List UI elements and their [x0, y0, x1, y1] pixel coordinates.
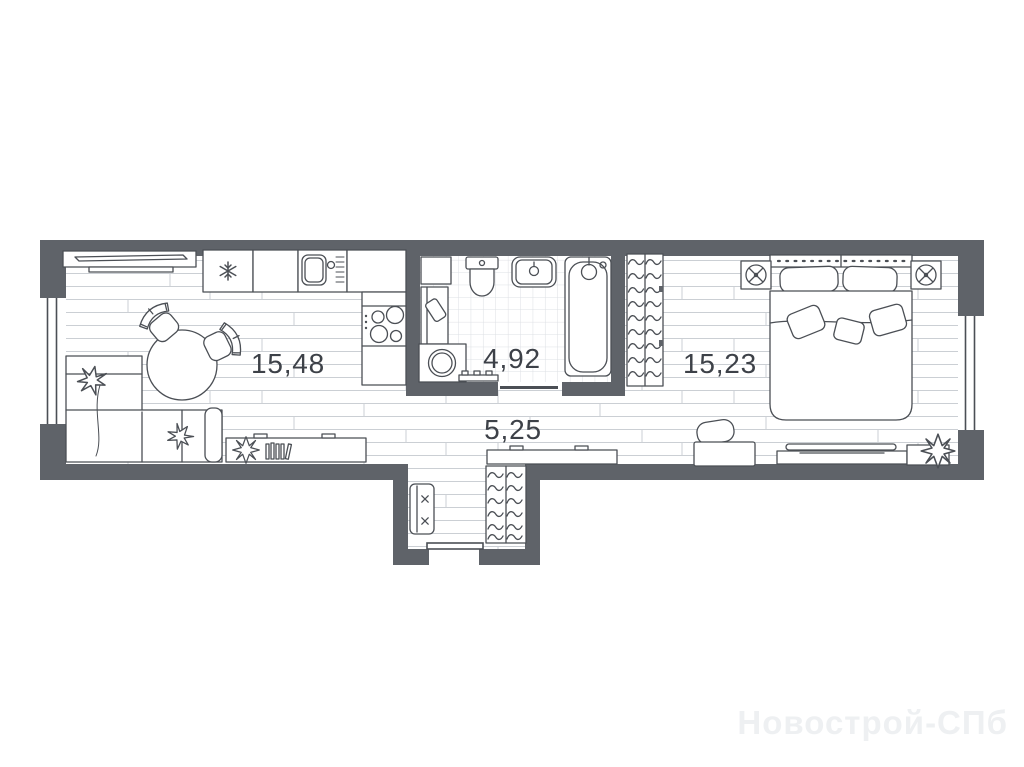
- wall-right-top: [958, 240, 984, 316]
- wall-bottom-living: [40, 464, 408, 480]
- fridge: [203, 250, 253, 292]
- kitchen-sink: [298, 250, 347, 292]
- coat-rack: [486, 466, 526, 543]
- nightstand-left: [741, 261, 771, 289]
- wall-vestibule-bottom-left: [393, 549, 429, 565]
- bathroom-door: [500, 386, 558, 389]
- room-area-label-hallway: 5,25: [484, 414, 542, 445]
- plant-icon: [233, 437, 260, 464]
- room-area-label-bedroom: 15,23: [683, 348, 757, 379]
- wash-basin: [512, 257, 556, 287]
- nightstand-right: [911, 261, 941, 289]
- window-left: [40, 298, 66, 424]
- wall-left-top: [40, 240, 66, 298]
- bathroom-shelf: [421, 287, 448, 344]
- bathroom-cabinet: [421, 257, 451, 284]
- wardrobe: [627, 254, 663, 386]
- wall-bathroom-bedroom: [611, 256, 625, 396]
- room-area-label-bathroom: 4,92: [483, 343, 541, 374]
- plant-icon: [921, 434, 955, 468]
- lamp-icon: [746, 265, 766, 285]
- sideboard: [226, 434, 366, 463]
- lamp-icon: [916, 265, 936, 285]
- wall-bathroom-bottom-left: [406, 382, 498, 396]
- bench: [410, 484, 434, 534]
- kitchen-counter: [253, 250, 298, 292]
- tv-console-bedroom: [777, 444, 907, 464]
- room-area-label-living: 15,48: [251, 348, 325, 379]
- window-right: [958, 316, 984, 430]
- floor-plan: 15,48 4,92 15,23 5,25 Новострой-СПб: [0, 0, 1024, 767]
- bathtub: [565, 257, 611, 376]
- wall-bottom-bedroom: [525, 464, 984, 480]
- wall-right-bottom: [958, 430, 984, 480]
- kitchen-stove: [362, 292, 406, 385]
- bed-pillow: [843, 266, 898, 293]
- kitchen-counter: [347, 250, 406, 292]
- bed-pillow: [780, 266, 839, 293]
- entrance-door: [427, 543, 483, 549]
- wall-kitchen-bathroom: [406, 256, 420, 396]
- watermark-text: Новострой-СПб: [737, 704, 1008, 741]
